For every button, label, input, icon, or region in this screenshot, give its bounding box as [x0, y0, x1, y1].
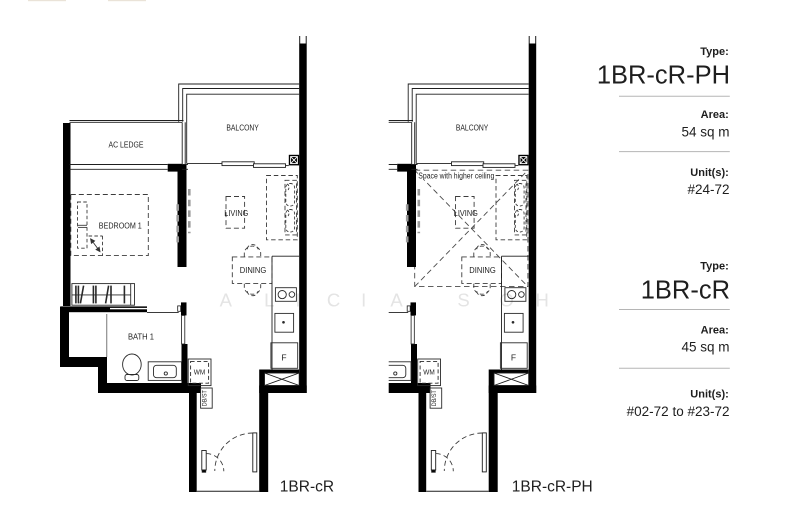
svg-text:1BR-cR-PH: 1BR-cR-PH [512, 479, 593, 496]
svg-text:A: A [220, 290, 233, 311]
svg-text:Unit(s):: Unit(s): [690, 167, 729, 179]
svg-text:A: A [390, 290, 403, 311]
svg-text:45 sq m: 45 sq m [681, 340, 729, 355]
svg-text:1BR-cR-PH: 1BR-cR-PH [597, 62, 730, 90]
svg-text:Unit(s):: Unit(s): [690, 389, 729, 401]
svg-text:Area:: Area: [701, 324, 729, 336]
svg-text:Space with higher ceiling: Space with higher ceiling [418, 171, 494, 180]
svg-text:1BR-cR: 1BR-cR [280, 479, 334, 496]
svg-text:C: C [327, 290, 340, 311]
svg-text:H: H [536, 290, 549, 311]
svg-text:Type:: Type: [700, 46, 729, 58]
svg-text:S: S [457, 290, 469, 311]
svg-text:Type:: Type: [700, 260, 729, 272]
svg-text:#02-72 to #23-72: #02-72 to #23-72 [627, 404, 730, 419]
svg-text:Area:: Area: [701, 109, 729, 121]
svg-text:#24-72: #24-72 [687, 182, 729, 197]
svg-text:L: L [264, 290, 274, 311]
svg-text:1BR-cR: 1BR-cR [641, 276, 730, 304]
svg-text:I: I [361, 290, 366, 311]
svg-text:54 sq m: 54 sq m [681, 124, 729, 139]
